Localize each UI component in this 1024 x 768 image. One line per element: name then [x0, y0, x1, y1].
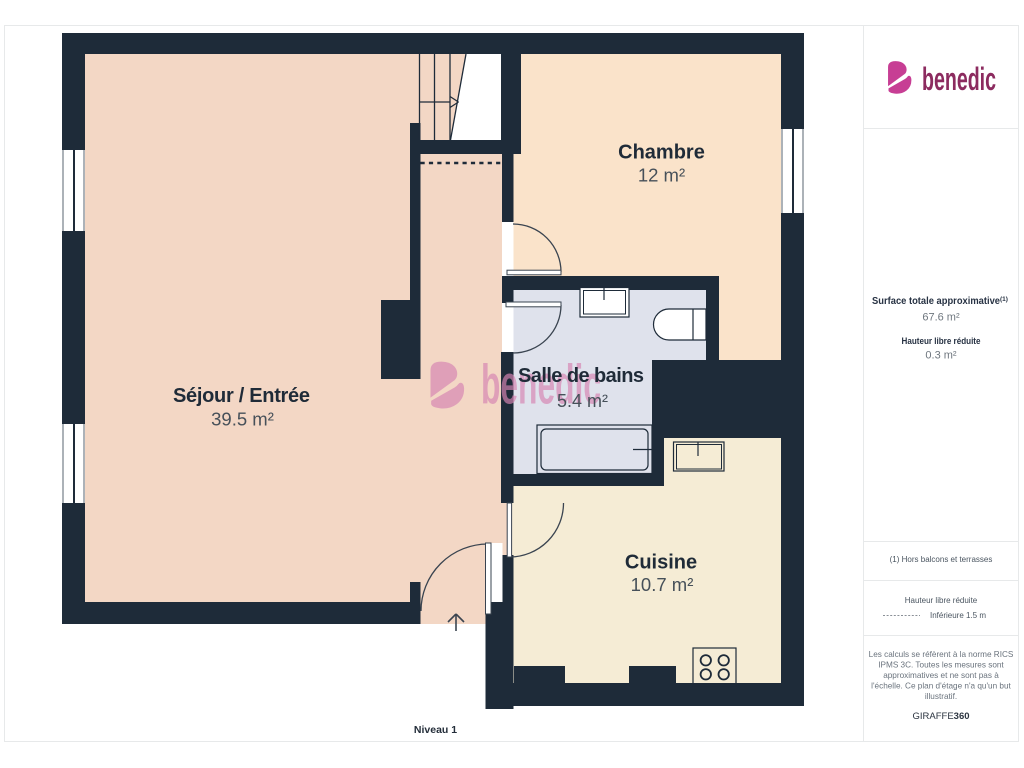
svg-text:approximatives et ne sont pas: approximatives et ne sont pas à [883, 671, 999, 680]
svg-text:Séjour / Entrée: Séjour / Entrée [173, 385, 310, 407]
svg-text:l'échelle. Ce plan d'étage n'a: l'échelle. Ce plan d'étage n'a qu'un but [871, 682, 1011, 691]
svg-text:Niveau 1: Niveau 1 [414, 724, 457, 736]
svg-text:(1) Hors balcons et terrasses: (1) Hors balcons et terrasses [890, 555, 993, 564]
svg-text:Cuisine: Cuisine [625, 552, 697, 574]
svg-text:Les calculs se réfèrent à la n: Les calculs se réfèrent à la norme RICS [869, 650, 1014, 659]
svg-text:Inférieure 1.5 m: Inférieure 1.5 m [930, 611, 986, 620]
svg-text:Salle de bains: Salle de bains [518, 365, 644, 387]
svg-text:benedic: benedic [922, 61, 996, 97]
svg-text:67.6 m²: 67.6 m² [922, 312, 960, 324]
svg-text:0.3 m²: 0.3 m² [925, 350, 957, 362]
svg-text:GIRAFFE360: GIRAFFE360 [912, 711, 969, 722]
svg-text:Surface totale approximative(1: Surface totale approximative(1) [872, 295, 1008, 307]
svg-text:10.7 m²: 10.7 m² [631, 574, 694, 595]
svg-text:Chambre: Chambre [618, 142, 705, 164]
svg-text:5.4 m²: 5.4 m² [557, 391, 608, 411]
svg-text:Hauteur libre réduite: Hauteur libre réduite [902, 336, 981, 347]
svg-text:illustratif.: illustratif. [925, 692, 957, 701]
svg-text:39.5 m²: 39.5 m² [211, 409, 274, 430]
svg-text:IPMS 3C. Toutes les mesures so: IPMS 3C. Toutes les mesures sont [878, 661, 1004, 670]
svg-text:Hauteur libre réduite: Hauteur libre réduite [905, 596, 978, 605]
svg-text:12 m²: 12 m² [638, 165, 685, 186]
